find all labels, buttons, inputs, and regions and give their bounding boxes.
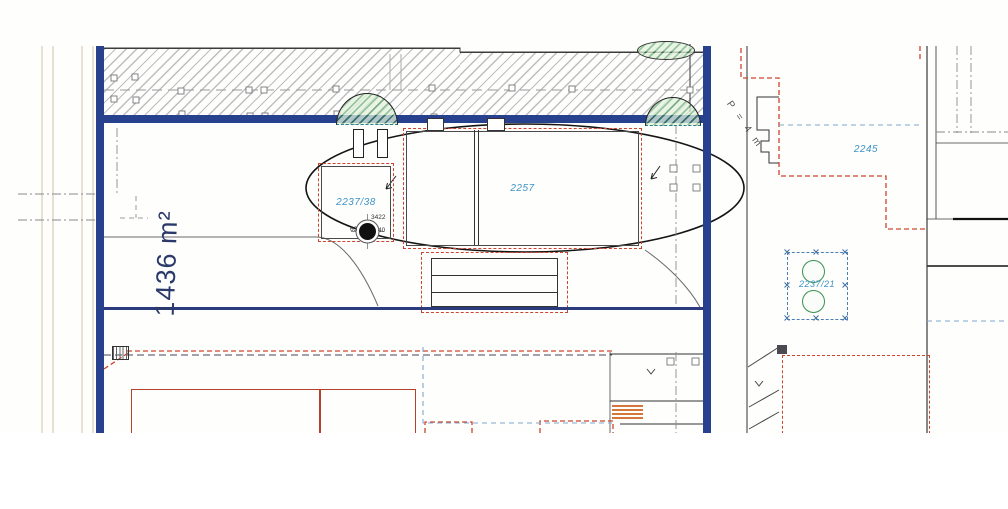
stair-line [612, 413, 643, 415]
ramp-step-line [431, 275, 557, 276]
site-plan-sheet: 1436 m² 2237/38 2257 3422 63 40 P = 4 m … [0, 0, 1008, 509]
pillar [377, 129, 388, 158]
area-annotation: 1436 m² [148, 168, 186, 359]
building-2257: 2257 [403, 128, 642, 249]
parcel-label-2245: 2245 [836, 144, 896, 155]
street-hatch-strip-left [104, 48, 460, 116]
survey-point-right-offset: 40 [378, 227, 385, 234]
margin-guide-lines [42, 46, 93, 433]
pillar [353, 129, 364, 158]
stair-line [612, 405, 643, 407]
tree-circle-icon [802, 290, 825, 313]
building-southeast-boundary [782, 355, 930, 434]
parcel-label-2257: 2257 [510, 183, 534, 194]
tree-canopy-icon [637, 41, 695, 60]
plot-boundary-east [703, 46, 711, 433]
survey-point-icon [359, 223, 376, 240]
corner-monument [777, 345, 787, 354]
stepped-building-corner [757, 97, 779, 163]
scan-edge-whitespace [0, 433, 1008, 509]
building-2257-divider-wall [474, 130, 479, 245]
entrance-tab [487, 118, 505, 131]
distance-note: P = 4 m [724, 99, 765, 151]
survey-point-number: 3422 [371, 214, 385, 221]
entrance-tab [427, 118, 444, 131]
ramp-step-line [431, 292, 557, 293]
small-hatched-structure [112, 346, 129, 360]
parcel-label-2237-21: 2237/21 [789, 279, 845, 289]
driveway-edge-right [645, 250, 700, 307]
plot-boundary-west [96, 46, 104, 433]
survey-point-left-offset: 63 [350, 226, 357, 233]
stair-line [612, 409, 643, 411]
stair-line [612, 417, 643, 419]
parcel-label-2237-38: 2237/38 [336, 197, 376, 208]
plot-boundary-north [104, 115, 711, 123]
access-diagonals [748, 347, 779, 429]
dashed-bracket [120, 196, 148, 218]
driveway-edge-left [104, 237, 378, 306]
street-south-line [104, 307, 704, 310]
building-southwest [131, 389, 416, 434]
loading-ramp [431, 258, 558, 307]
building-southwest-divider [319, 390, 321, 433]
